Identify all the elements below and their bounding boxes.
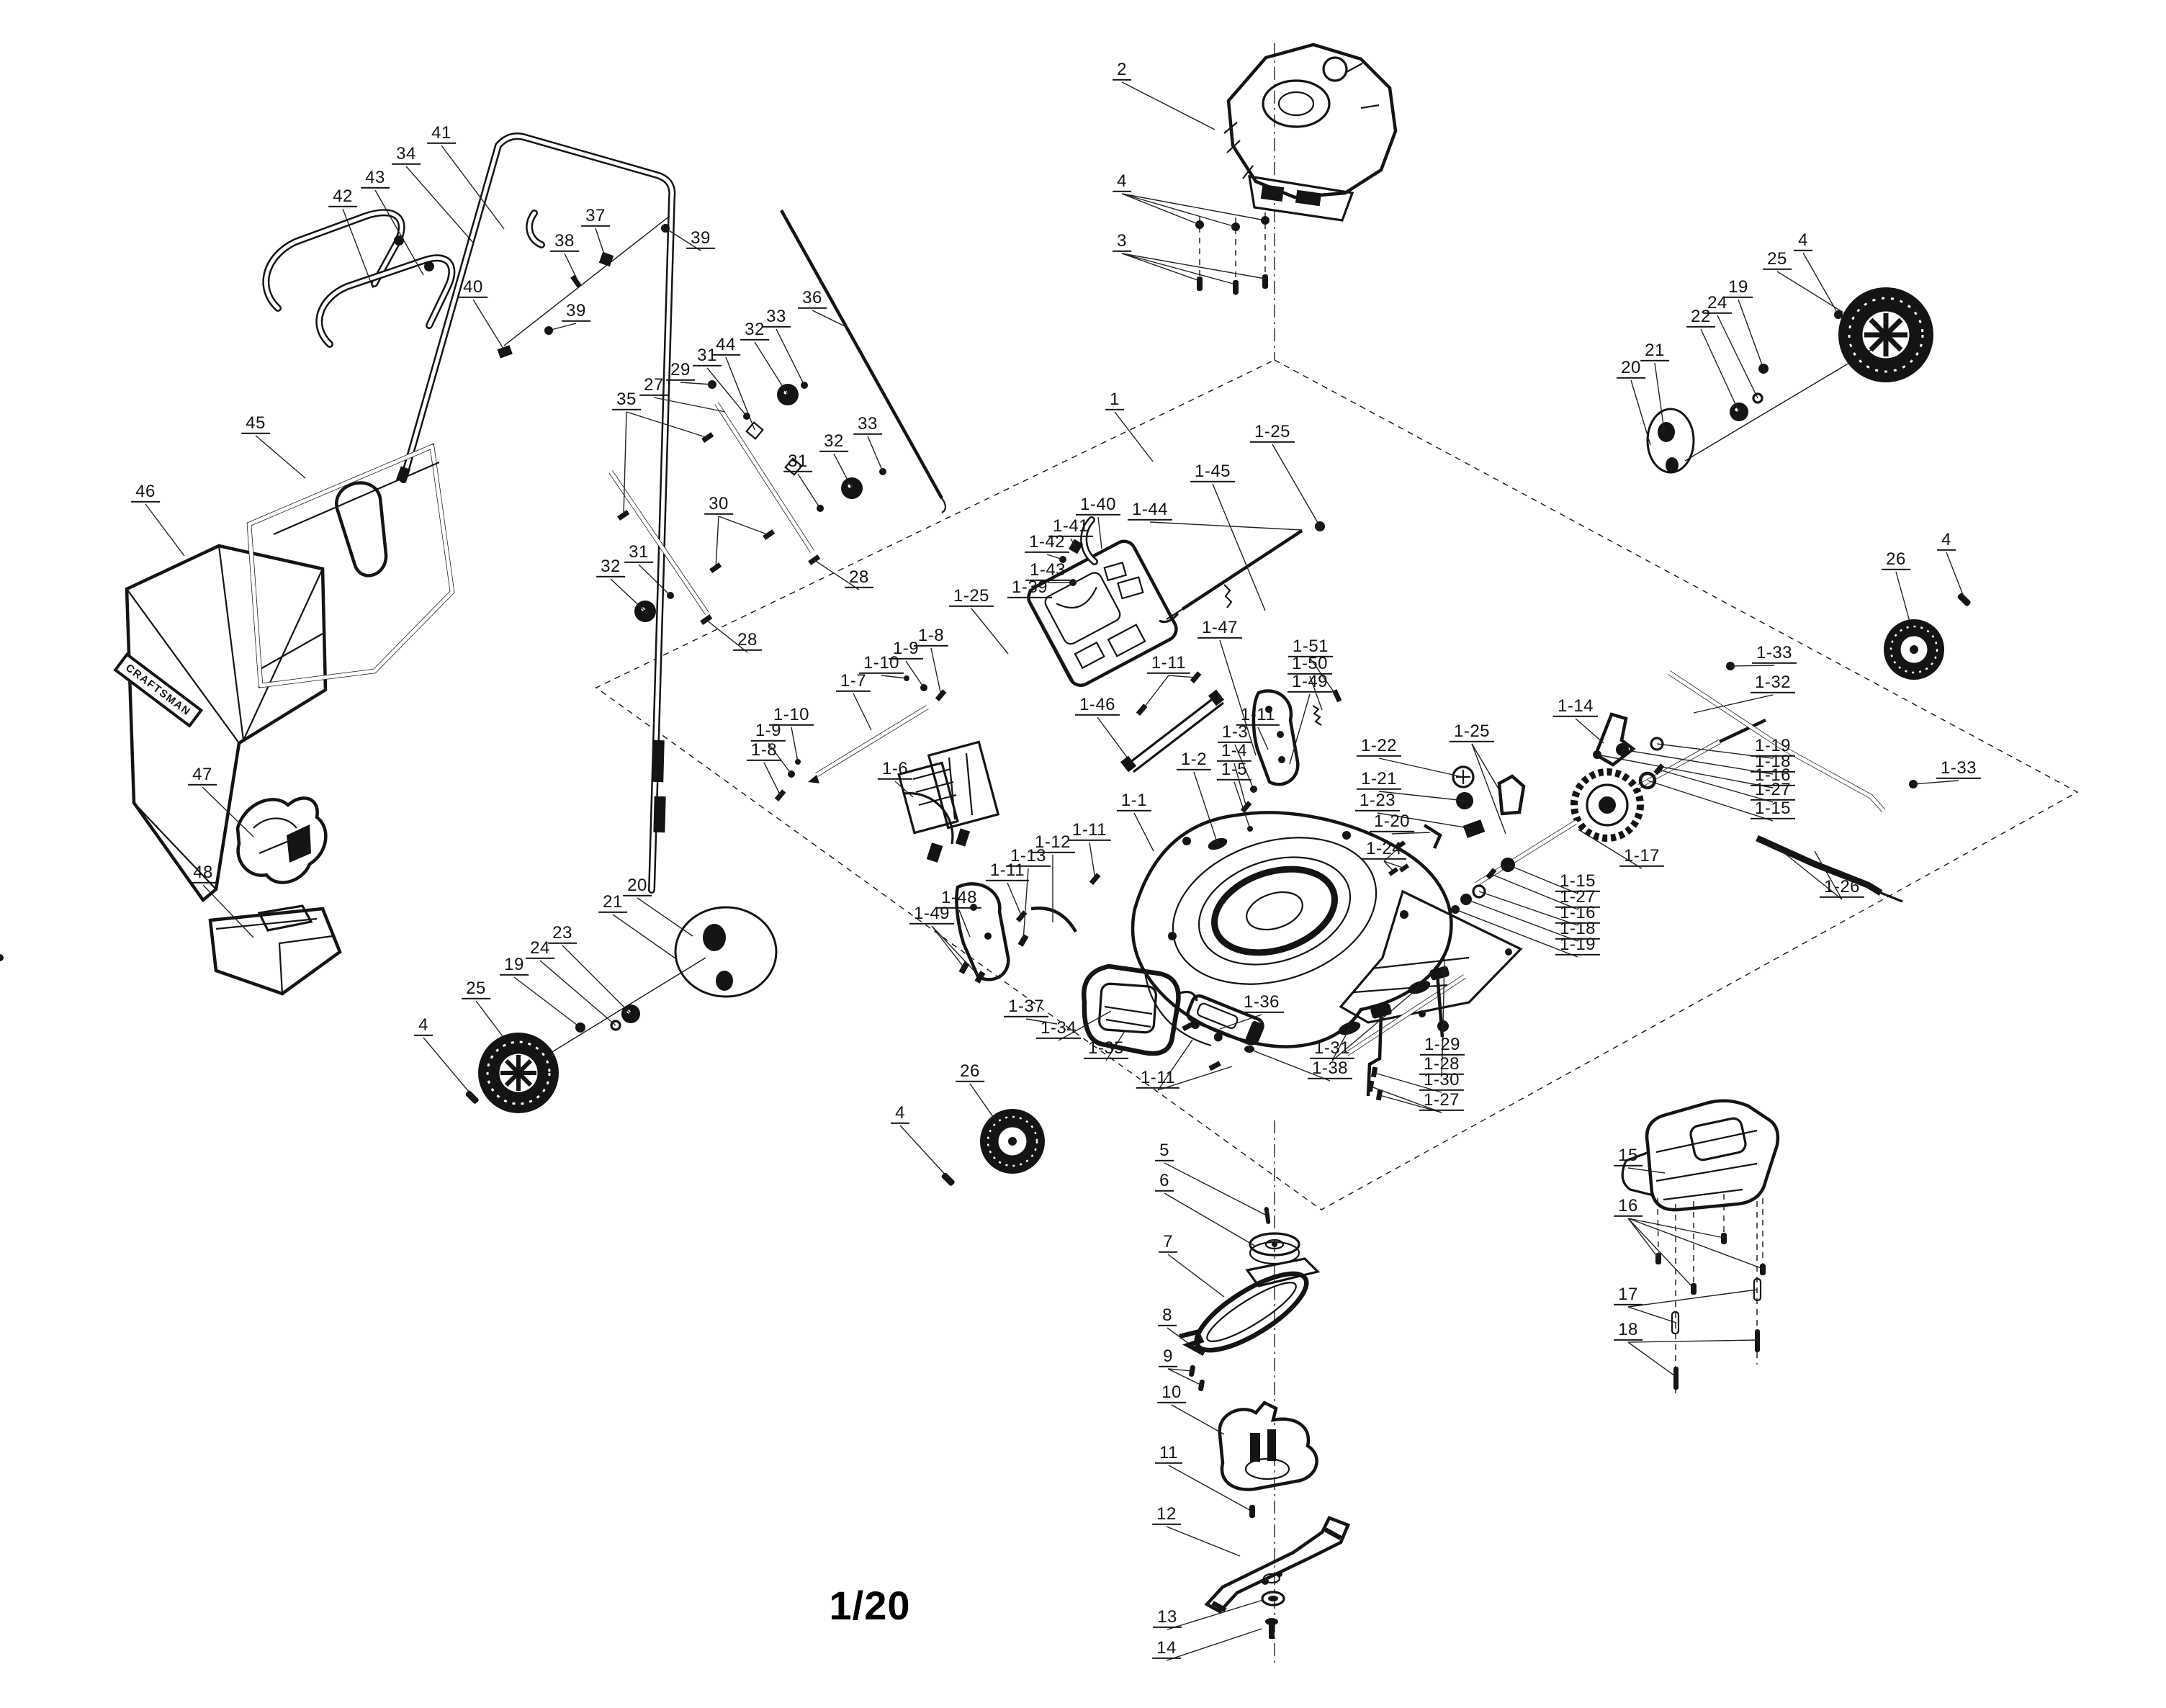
parts-diagram-page: 2434134434237383940393633324431292735333… (0, 0, 2166, 1708)
part-label: 25 (1763, 250, 1792, 270)
part-label: 1-37 (1004, 997, 1048, 1017)
part-label: 48 (189, 863, 217, 884)
part-label: 34 (392, 145, 421, 165)
part-label: 1-20 (1370, 812, 1414, 832)
part-label: 1-4 (1217, 742, 1251, 762)
part-label: 4 (891, 1104, 909, 1124)
part-label: 47 (188, 765, 217, 786)
part-label: 1-24 (1362, 840, 1406, 860)
part-label: 38 (550, 232, 579, 252)
part-label: 1-45 (1190, 462, 1235, 482)
part-label: 1-1 (1117, 791, 1151, 812)
part-label: 10 (1157, 1383, 1186, 1403)
part-label: 14 (1152, 1639, 1181, 1659)
part-label: 26 (1882, 550, 1910, 570)
part-label: 1-36 (1239, 993, 1284, 1013)
part-label: 24 (526, 939, 554, 959)
part-label: 1-44 (1128, 500, 1172, 521)
part-label: 1-22 (1357, 737, 1401, 757)
part-label: 33 (853, 415, 882, 435)
part-label: 1-15 (1751, 799, 1795, 819)
part-label: 1-9 (751, 722, 786, 742)
part-label: 40 (459, 278, 487, 298)
part-label: 1-5 (1217, 760, 1251, 781)
part-label: 22 (1686, 307, 1715, 328)
part-label: 1-38 (1308, 1059, 1352, 1079)
part-label: 17 (1614, 1285, 1643, 1305)
part-label: 43 (361, 168, 390, 189)
part-label: 1-33 (1752, 644, 1797, 664)
part-label: 31 (693, 346, 722, 367)
part-label: 1-32 (1751, 673, 1795, 693)
part-label: 2 (1113, 60, 1131, 81)
part-label: 1-21 (1357, 770, 1401, 790)
part-label: 1 (1105, 390, 1124, 410)
part-label: 1-25 (1450, 722, 1494, 742)
part-label: 46 (131, 482, 160, 503)
part-label: 1-46 (1075, 696, 1120, 716)
part-label: 1-2 (1177, 750, 1211, 770)
part-label: 15 (1614, 1146, 1643, 1167)
part-label: 19 (500, 956, 529, 976)
part-label: 8 (1158, 1306, 1177, 1326)
part-label: 20 (1617, 359, 1645, 379)
part-label: 1-42 (1025, 533, 1069, 553)
part-label: 32 (740, 320, 769, 341)
part-label: 45 (241, 414, 270, 434)
part-label: 1-40 (1076, 495, 1120, 516)
part-label: 1-26 (1820, 878, 1864, 898)
part-label: 30 (704, 495, 733, 515)
part-label: 1-7 (836, 672, 871, 692)
part-label: 21 (598, 893, 627, 913)
part-label: 1-49 (909, 904, 954, 925)
part-label: 36 (798, 289, 827, 309)
part-label: 1-14 (1553, 697, 1598, 717)
part-label: 39 (686, 229, 715, 249)
part-label: 1-6 (878, 760, 912, 780)
part-label: 1-3 (1218, 723, 1252, 743)
part-label: 1-39 (1007, 578, 1052, 598)
part-label: 25 (462, 979, 490, 999)
part-label: 4 (414, 1016, 433, 1036)
part-label: 28 (733, 631, 762, 651)
part-label: 1-30 (1419, 1071, 1464, 1091)
part-label: 1-25 (949, 587, 994, 607)
part-label: 6 (1155, 1172, 1174, 1192)
part-label: 1-11 (986, 861, 1029, 881)
part-label: 5 (1155, 1141, 1174, 1161)
part-label: 3 (1113, 232, 1131, 252)
part-label: 4 (1937, 531, 1956, 551)
part-label: 1-27 (1419, 1091, 1464, 1111)
part-label: 27 (639, 376, 668, 396)
part-label: 1-25 (1250, 423, 1295, 443)
part-label: 1-35 (1084, 1039, 1128, 1059)
part-label: 1-17 (1619, 847, 1664, 867)
part-label: 1-49 (1288, 673, 1332, 693)
part-label: 42 (328, 187, 357, 207)
part-label: 1-33 (1936, 759, 1981, 779)
part-label: 31 (624, 543, 653, 563)
part-label: 7 (1159, 1233, 1177, 1253)
part-label: 13 (1153, 1608, 1182, 1628)
part-label: 39 (562, 302, 590, 322)
part-label: 1-34 (1036, 1019, 1081, 1039)
part-label: 31 (783, 452, 812, 472)
part-label: 4 (1113, 172, 1131, 192)
part-label: 20 (623, 876, 652, 896)
part-label: 29 (666, 361, 695, 381)
part-label: 1-11 (1147, 654, 1190, 674)
part-label: 1-47 (1197, 619, 1242, 639)
part-label: 26 (956, 1062, 984, 1082)
part-label: 1-23 (1355, 791, 1400, 812)
part-label: 35 (612, 390, 641, 410)
part-label: 28 (845, 568, 873, 588)
part-label: 1-19 (1555, 935, 1600, 956)
part-label: 4 (1794, 231, 1812, 251)
part-label: 1-29 (1420, 1035, 1465, 1056)
part-label: 1-27 (1751, 781, 1795, 801)
part-label: 37 (581, 207, 610, 227)
part-label: 9 (1159, 1347, 1177, 1367)
part-label: 11 (1155, 1444, 1182, 1464)
part-label: 12 (1152, 1505, 1181, 1525)
page-number: 1/20 (830, 1582, 911, 1629)
part-label: 41 (427, 124, 456, 144)
part-label: 32 (596, 557, 625, 577)
part-label: 1-31 (1310, 1039, 1354, 1059)
part-label: 32 (819, 432, 848, 452)
part-label: 1-11 (1136, 1069, 1179, 1089)
part-label: 1-8 (747, 741, 781, 761)
callout-labels: 2434134434237383940393633324431292735333… (0, 0, 2166, 1708)
part-label: 18 (1614, 1321, 1643, 1341)
part-label: 16 (1614, 1197, 1643, 1217)
